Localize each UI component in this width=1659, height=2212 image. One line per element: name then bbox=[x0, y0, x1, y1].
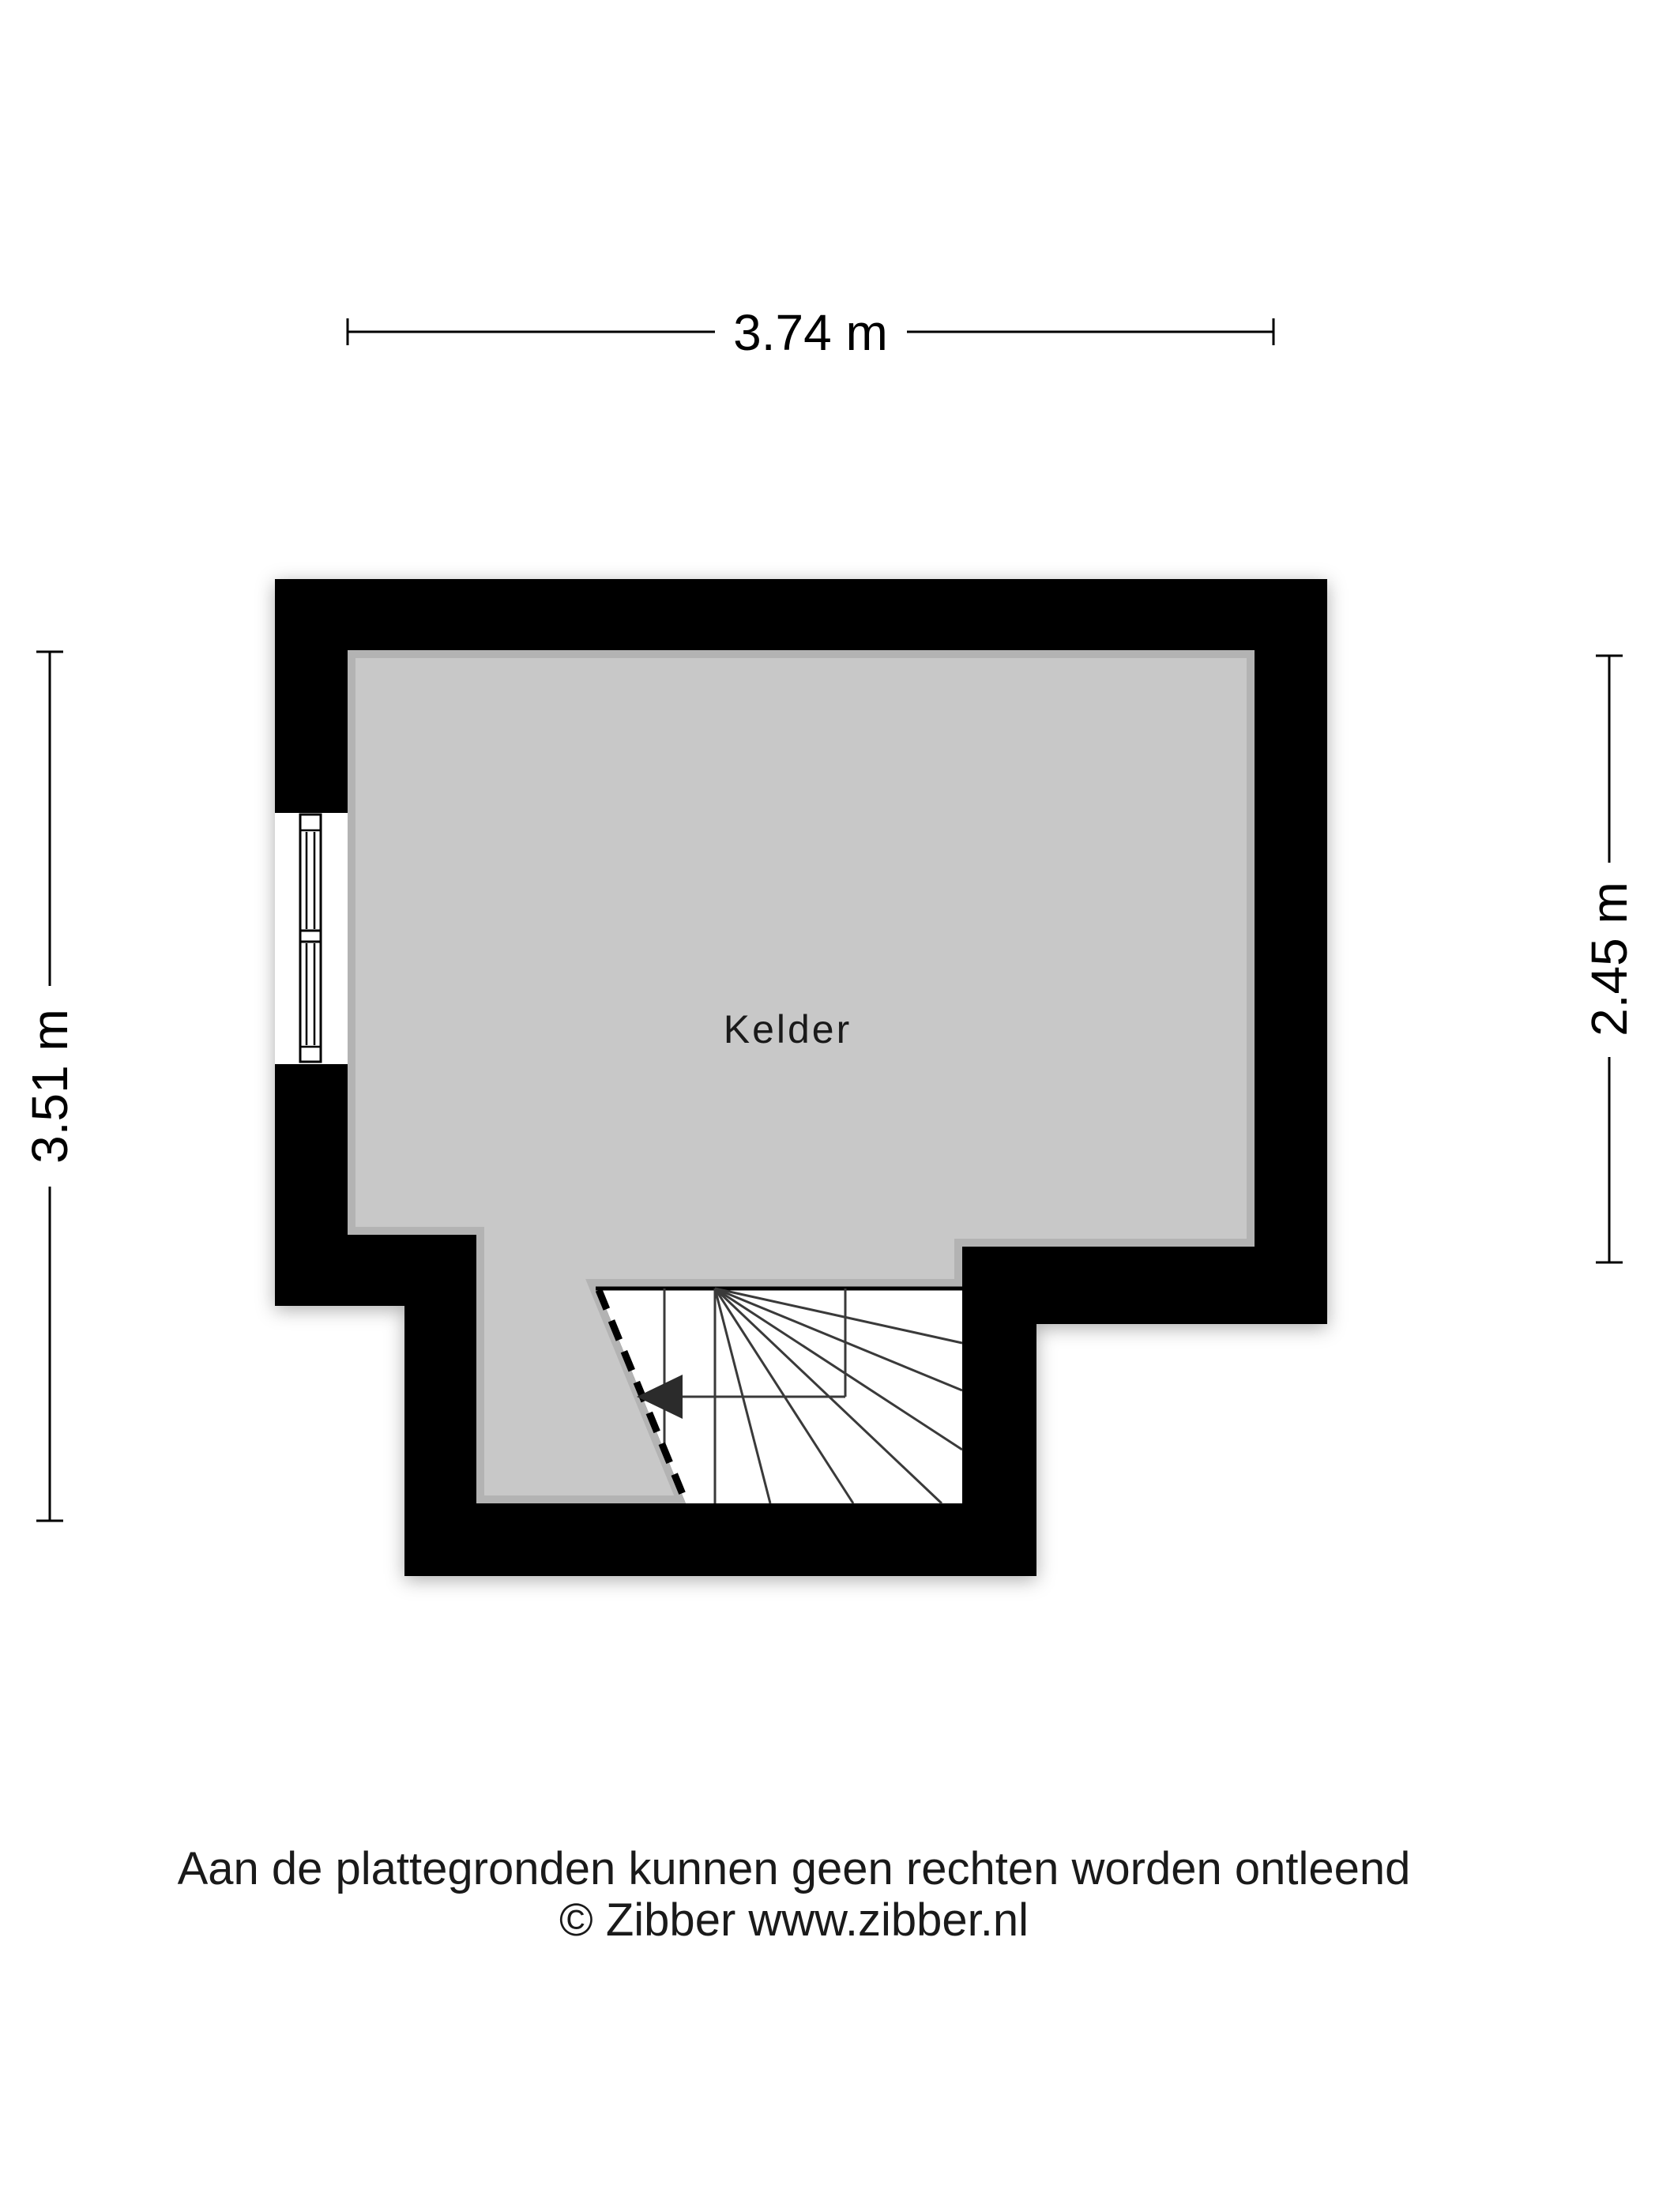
dimension-left: 3.51 m bbox=[21, 652, 78, 1521]
dimension-right-label: 2.45 m bbox=[1581, 882, 1638, 1036]
footer-copyright: © Zibber www.zibber.nl bbox=[559, 1894, 1029, 1946]
footer-disclaimer: Aan de plattegronden kunnen geen rechten… bbox=[178, 1843, 1411, 1894]
dimension-left-label: 3.51 m bbox=[21, 1009, 78, 1164]
floorplan-canvas: Kelder 3.74 m 3.51 m 2.45 m Aan de platt… bbox=[0, 0, 1659, 2212]
window bbox=[275, 813, 348, 1064]
dimension-top-label: 3.74 m bbox=[733, 304, 888, 361]
dimension-top: 3.74 m bbox=[348, 304, 1273, 361]
dimension-right: 2.45 m bbox=[1581, 656, 1638, 1262]
window-mullion bbox=[300, 931, 321, 942]
room-label: Kelder bbox=[724, 1007, 852, 1051]
